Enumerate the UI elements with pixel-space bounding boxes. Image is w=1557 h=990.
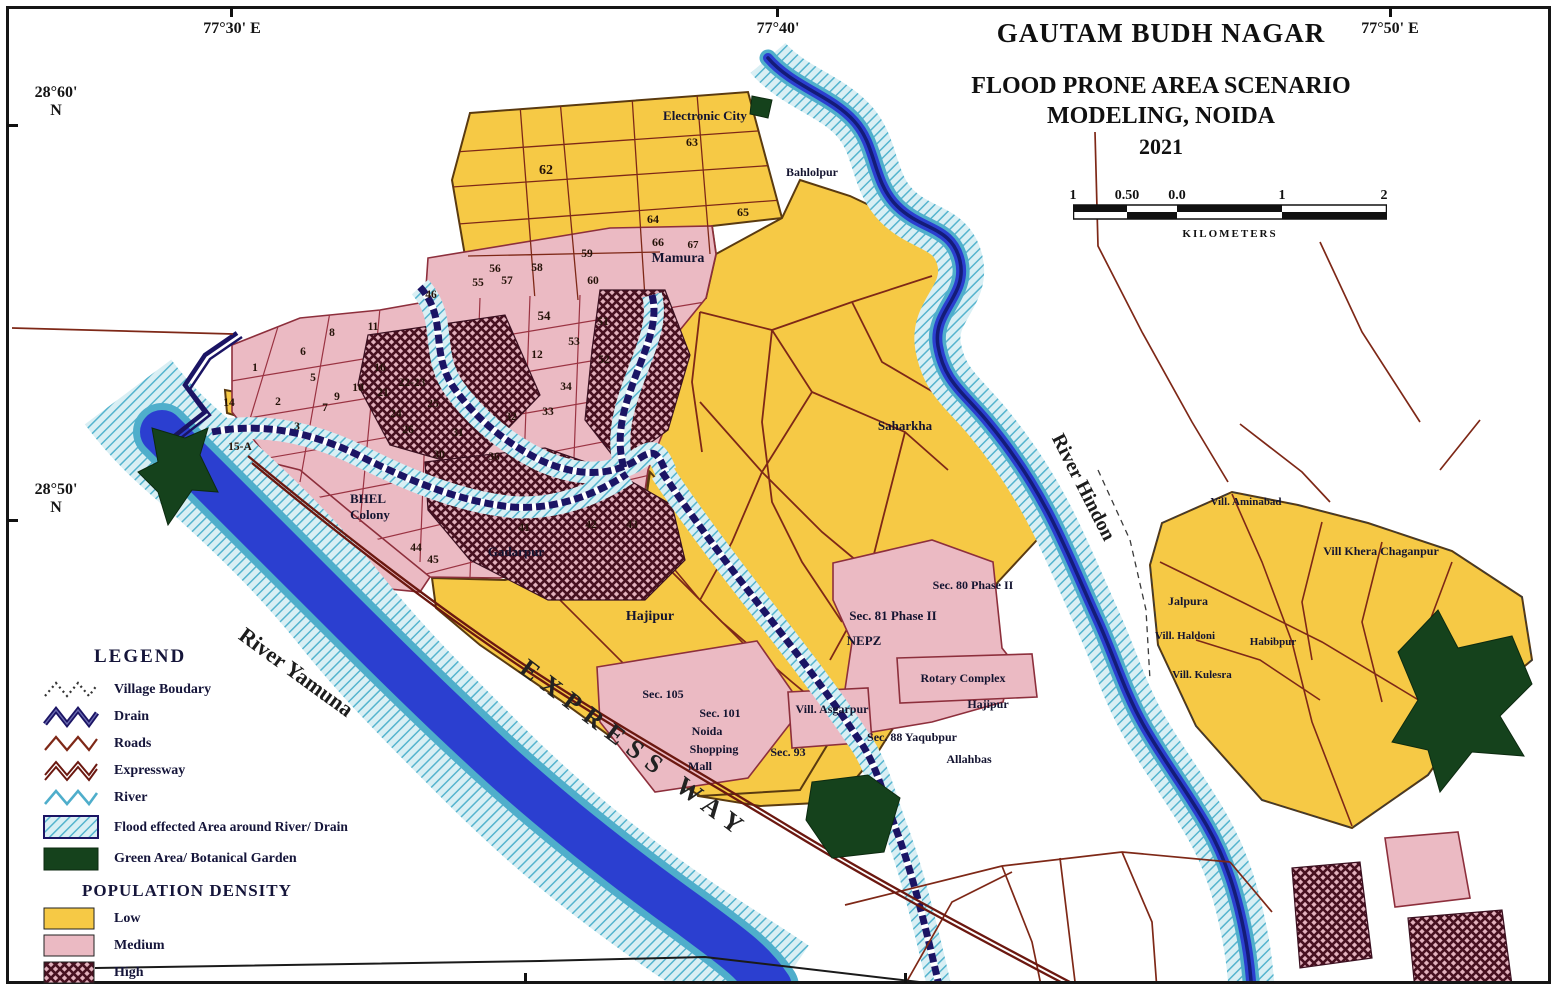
region-pink-southeast — [1385, 832, 1470, 907]
map-label-vill-kulesra: Vill. Kulesra — [1172, 669, 1232, 681]
scale-bar: 1 0.50 0.0 1 2 KILOMETERS — [1073, 188, 1387, 240]
sector-number-60: 60 — [587, 275, 599, 287]
map-label-bahlolpur: Bahlolpur — [786, 165, 839, 179]
sector-number-10: 10 — [352, 382, 364, 394]
legend-label: Drain — [114, 709, 149, 725]
legend-item-roads: Roads — [42, 730, 462, 757]
legend-label: High — [114, 965, 144, 981]
scale-label: 1 — [1279, 188, 1286, 204]
high-density-swatch — [42, 960, 100, 986]
sector-number-33: 33 — [542, 406, 554, 418]
scale-bar-numbers: 1 0.50 0.0 1 2 — [1073, 188, 1387, 204]
coordinate-label-top: 77°40' — [713, 20, 843, 38]
map-label-noida: Noida — [692, 724, 723, 738]
map-label-nepz: NEPZ — [847, 633, 882, 648]
tick-mark — [904, 973, 907, 983]
map-label-sec-101: Sec. 101 — [699, 706, 740, 720]
tick-mark — [524, 973, 527, 983]
sector-number-25: 25 — [427, 398, 439, 410]
legend-label: Village Boudary — [114, 682, 211, 698]
map-label-vill-khera-chaganpur: Vill Khera Chaganpur — [1323, 544, 1439, 558]
sector-number-21: 21 — [377, 387, 389, 399]
scale-bar-graphic — [1073, 204, 1387, 220]
map-label-mamura: Mamura — [652, 251, 705, 266]
legend-item-green-area: Green Area/ Botanical Garden — [42, 843, 462, 875]
map-label-vill-haldoni: Vill. Haldoni — [1155, 630, 1215, 642]
map-label-vill-aminabad: Vill. Aminabad — [1210, 496, 1281, 508]
sector-number-66: 66 — [652, 235, 664, 249]
legend-label: Low — [114, 911, 140, 927]
sector-number-59: 59 — [581, 248, 593, 260]
sector-number-32: 32 — [505, 411, 517, 423]
sector-number-52: 52 — [598, 354, 610, 366]
region-title: GAUTAM BUDH NAGAR — [941, 18, 1381, 49]
high-density-patch — [1408, 910, 1512, 981]
sector-number-1: 1 — [252, 362, 258, 374]
sector-number-3: 3 — [294, 421, 300, 433]
map-label-hajipur: Hajipur — [626, 609, 674, 624]
sector-number-12: 12 — [531, 349, 543, 361]
legend-label: Green Area/ Botanical Garden — [114, 851, 297, 867]
map-label-vill-asgarpur: Vill. Asgarpur — [796, 702, 870, 716]
scale-label: 0.0 — [1168, 188, 1186, 204]
population-density-heading: POPULATION DENSITY — [82, 881, 462, 901]
sector-number-57: 57 — [501, 275, 513, 287]
legend-item-expressway: Expressway — [42, 757, 462, 784]
sector-number-51: 51 — [597, 316, 609, 328]
map-year: 2021 — [941, 134, 1381, 160]
sector-number-14: 14 — [223, 397, 235, 409]
map-label-hajipur: Hajipur — [967, 697, 1009, 711]
tick-mark — [7, 519, 18, 522]
title-block: GAUTAM BUDH NAGAR FLOOD PRONE AREA SCENA… — [941, 18, 1381, 160]
map-label-habibpur: Habibpur — [1250, 636, 1297, 648]
green-area-north — [750, 96, 772, 118]
legend-item-low-density: Low — [42, 905, 462, 932]
sector-number-26: 26 — [402, 424, 414, 436]
map-label-bhel: BHEL — [350, 491, 386, 506]
sector-number-22-23: 22-23 — [399, 377, 426, 389]
legend-item-village-boundary: Village Boudary — [42, 676, 462, 703]
legend-label: Roads — [114, 736, 151, 752]
legend-item-river: River — [42, 784, 462, 811]
map-label-shopping: Shopping — [690, 742, 739, 756]
sector-number-30: 30 — [433, 449, 445, 461]
coordinate-label-top: 77°30' E — [167, 20, 297, 38]
map-label-gadarpur: Gadarpur — [488, 544, 545, 559]
tick-mark — [230, 7, 233, 17]
scale-unit: KILOMETERS — [1073, 228, 1387, 240]
sector-number-44: 44 — [410, 542, 422, 554]
sector-number-45: 45 — [427, 554, 439, 566]
sector-number-36: 36 — [488, 451, 500, 463]
legend-label: Medium — [114, 938, 165, 954]
map-title-line2: MODELING, NOIDA — [941, 101, 1381, 131]
legend-item-medium-density: Medium — [42, 932, 462, 959]
sector-number-43: 43 — [626, 519, 638, 531]
expressway-icon — [42, 758, 100, 784]
legend-label: Expressway — [114, 763, 185, 779]
map-label-sec-80-phase-ii: Sec. 80 Phase II — [933, 578, 1014, 592]
sector-number-41: 41 — [518, 522, 530, 534]
sector-number-5: 5 — [310, 372, 316, 384]
coordinate-label-left: 28°60'N — [24, 84, 88, 119]
sector-number-46: 46 — [425, 289, 437, 301]
sector-number-63: 63 — [686, 135, 698, 149]
flood-area-swatch — [42, 814, 100, 840]
sector-number-2: 2 — [275, 396, 281, 408]
sector-number-56: 56 — [489, 263, 501, 275]
map-label-sec-88-yaqubpur: Sec. 88 Yaqubpur — [867, 730, 958, 744]
map-label-electronic-city: Electronic City — [663, 108, 747, 123]
legend-heading: LEGEND — [94, 646, 462, 668]
scale-label: 1 — [1070, 188, 1077, 204]
sector-number-8: 8 — [329, 327, 335, 339]
medium-density-swatch — [42, 933, 100, 959]
sector-number-62: 62 — [539, 163, 553, 178]
legend-item-drain: Drain — [42, 703, 462, 730]
legend-item-flood-area: Flood effected Area around River/ Drain — [42, 811, 462, 843]
legend-item-high-density: High — [42, 959, 462, 986]
river-icon — [42, 785, 100, 811]
sector-number-11: 11 — [368, 321, 379, 333]
map-label-mall: Mall — [688, 759, 713, 773]
sector-number-7: 7 — [322, 402, 328, 414]
tick-mark — [7, 124, 18, 127]
sector-number-15-a: 15-A — [228, 441, 252, 453]
tick-mark — [1389, 7, 1392, 17]
sector-number-55: 55 — [472, 277, 484, 289]
roads-icon — [42, 731, 100, 757]
map-label-sec-93: Sec. 93 — [770, 745, 805, 759]
village-boundary-icon — [42, 677, 100, 703]
sector-number-24: 24 — [390, 408, 402, 420]
map-label-jalpura: Jalpura — [1168, 594, 1208, 608]
tick-mark — [776, 7, 779, 17]
map-label-colony: Colony — [350, 507, 390, 522]
drain-icon — [42, 704, 100, 730]
map-label-sec-81-phase-ii: Sec. 81 Phase II — [849, 608, 936, 623]
map-sheet: 123567891011121415-A162122-2324252630313… — [0, 0, 1557, 990]
legend-label: River — [114, 790, 147, 806]
sector-number-64: 64 — [647, 212, 659, 226]
map-label-saharkha: Saharkha — [878, 418, 933, 433]
high-density-patch — [1292, 862, 1372, 968]
sector-number-54: 54 — [538, 308, 552, 323]
legend: LEGEND Village Boudary Drain Roads — [42, 646, 462, 986]
sector-number-58: 58 — [531, 262, 543, 274]
low-density-swatch — [42, 906, 100, 932]
sector-number-6: 6 — [300, 346, 306, 358]
scale-label: 2 — [1381, 188, 1388, 204]
coordinate-label-left: 28°50'N — [24, 481, 88, 516]
map-label-allahbas: Allahbas — [946, 752, 992, 766]
legend-label: Flood effected Area around River/ Drain — [114, 819, 348, 835]
map-label-rotary-complex: Rotary Complex — [921, 671, 1006, 685]
sector-number-67: 67 — [688, 239, 700, 251]
sector-number-9: 9 — [334, 391, 340, 403]
map-title-line1: FLOOD PRONE AREA SCENARIO — [941, 71, 1381, 101]
sector-number-53: 53 — [568, 336, 580, 348]
scale-label: 0.50 — [1115, 188, 1140, 204]
sector-number-42: 42 — [585, 519, 597, 531]
sector-number-31: 31 — [452, 427, 464, 439]
sector-number-16: 16 — [374, 362, 386, 374]
green-area-swatch — [42, 846, 100, 872]
sector-number-65: 65 — [737, 205, 749, 219]
map-label-sec-105: Sec. 105 — [642, 687, 683, 701]
sector-number-34: 34 — [560, 381, 572, 393]
